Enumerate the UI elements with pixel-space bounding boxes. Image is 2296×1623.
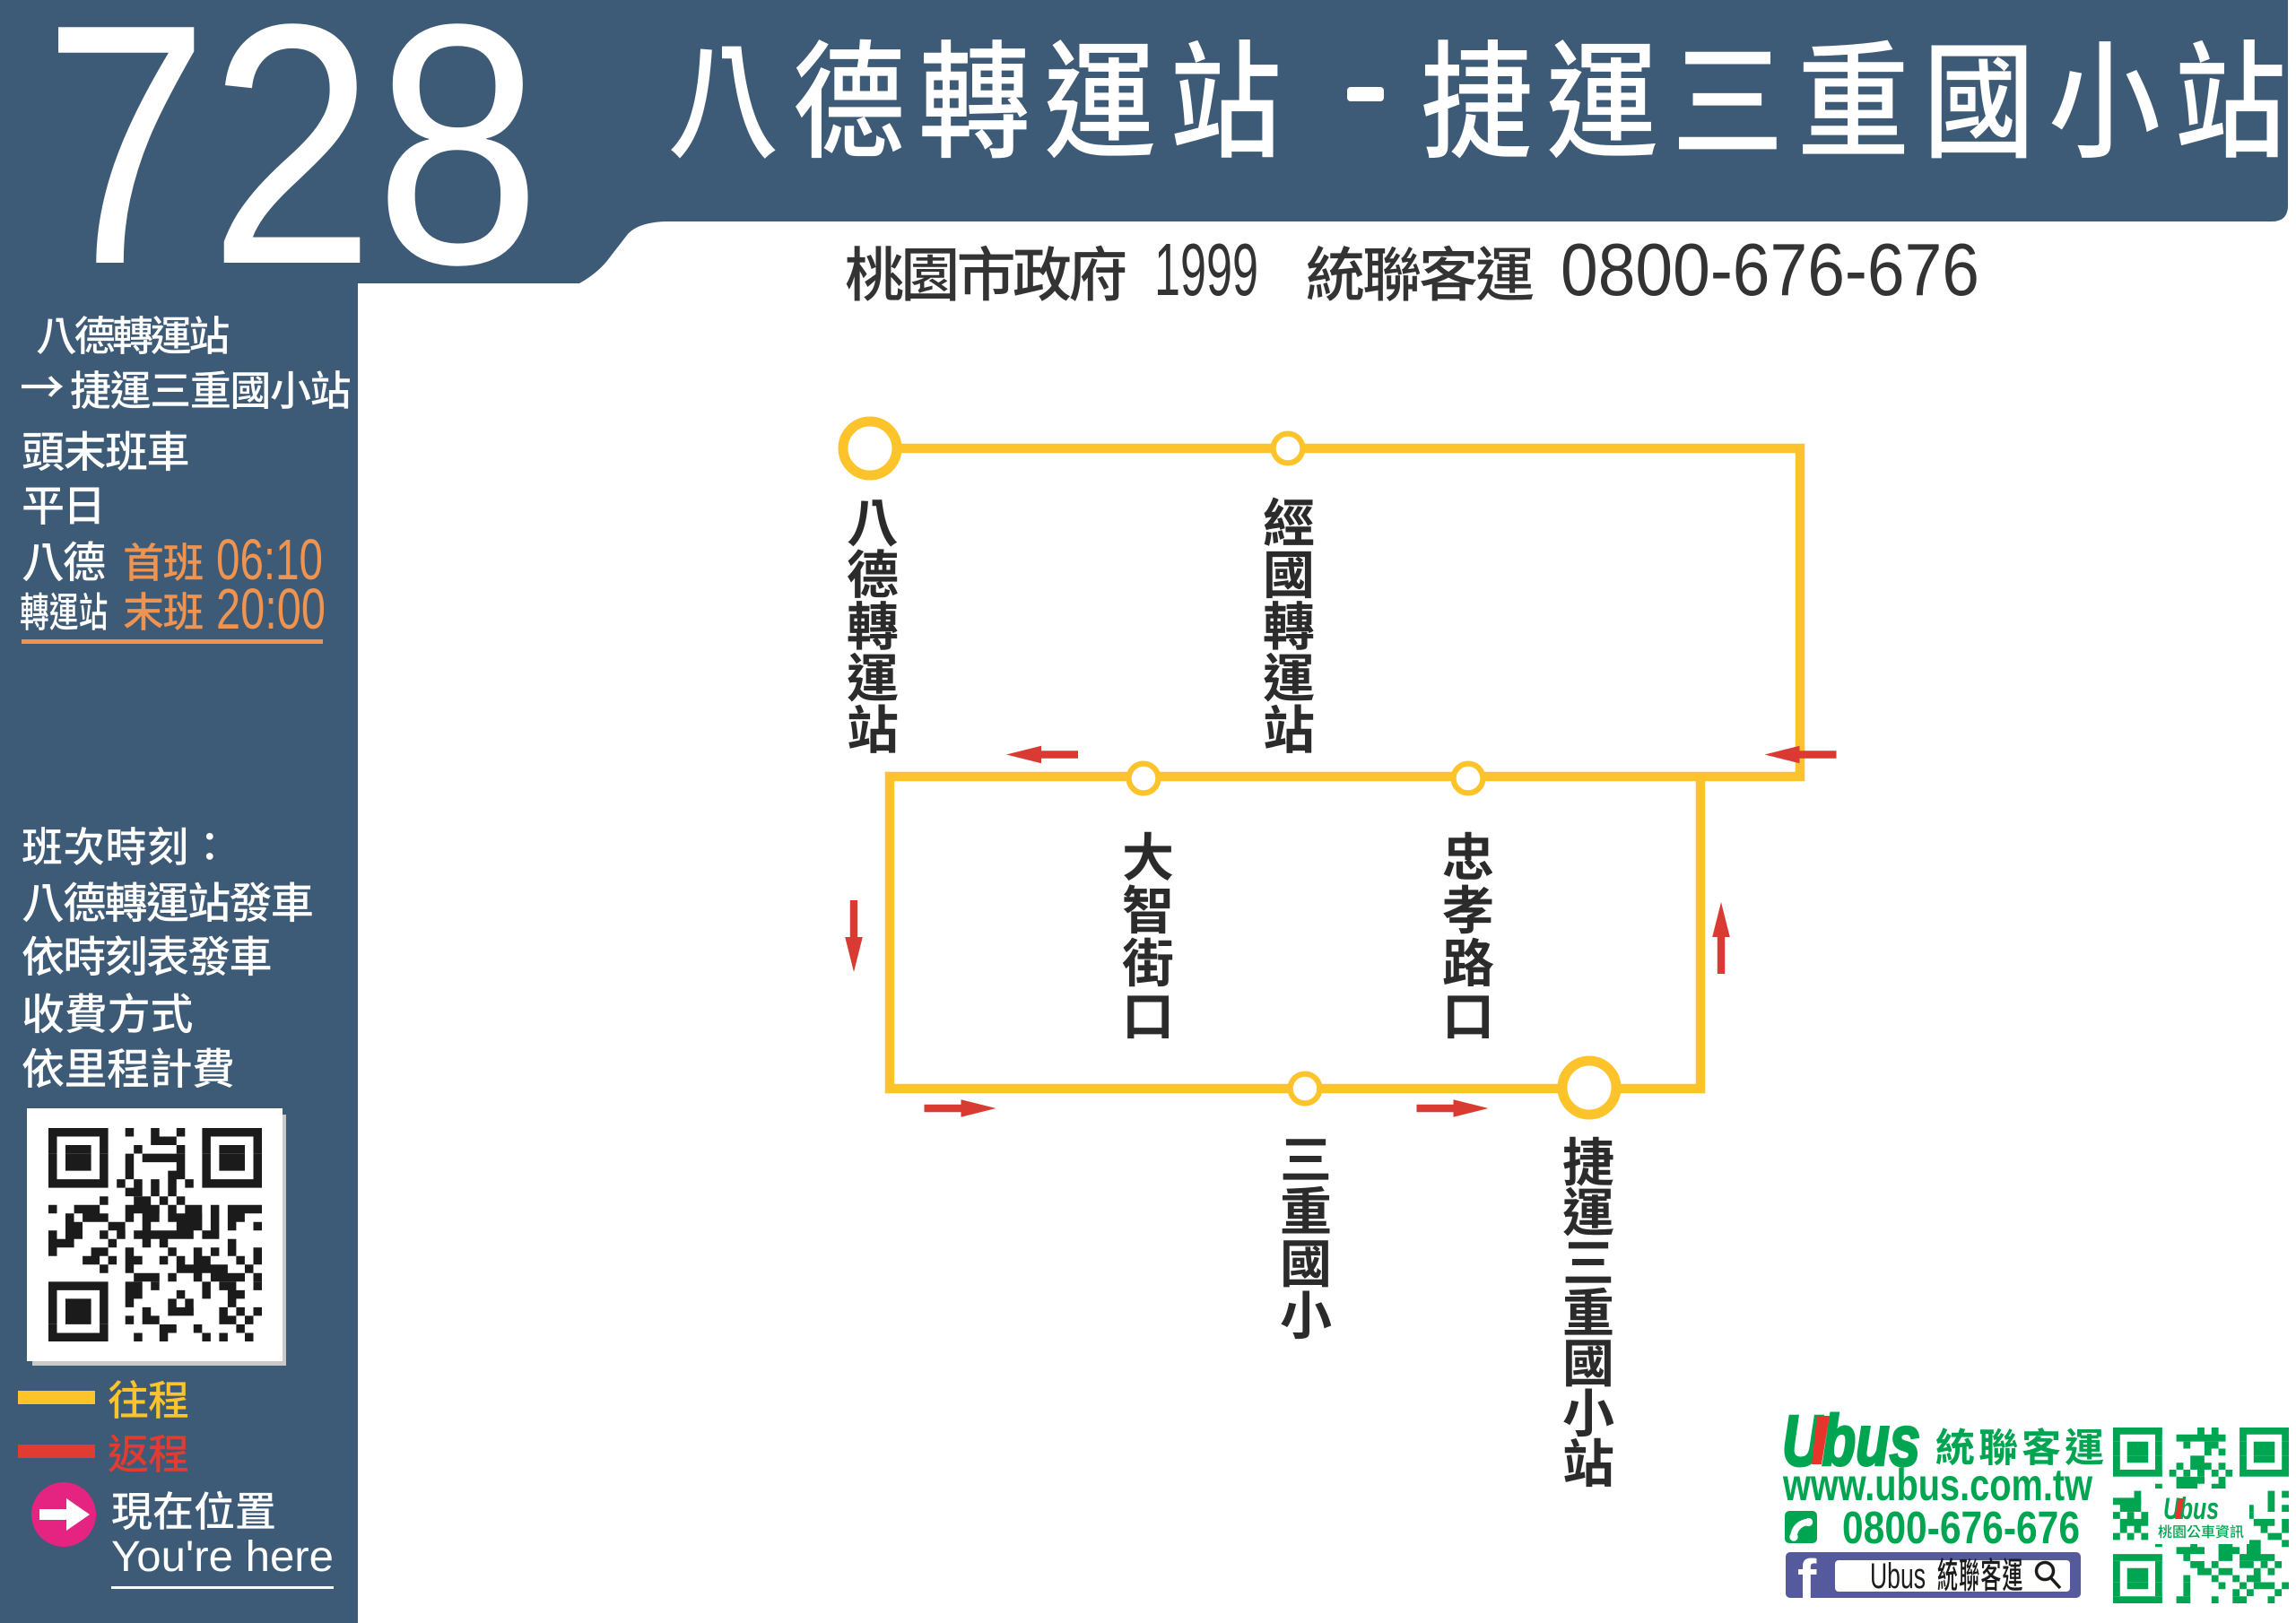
- svg-text:Ubus: Ubus: [2163, 1492, 2219, 1526]
- svg-text:1999: 1999: [1154, 228, 1258, 311]
- svg-text:728: 728: [43, 0, 541, 335]
- svg-text:0800-676-676: 0800-676-676: [1561, 228, 1979, 311]
- svg-text:f: f: [1797, 1548, 1817, 1612]
- svg-text:20:00: 20:00: [216, 577, 326, 641]
- svg-text:You're here: You're here: [111, 1533, 334, 1581]
- svg-text:0800-676-676: 0800-676-676: [1842, 1502, 2080, 1553]
- svg-text:Ubus: Ubus: [1870, 1557, 1926, 1596]
